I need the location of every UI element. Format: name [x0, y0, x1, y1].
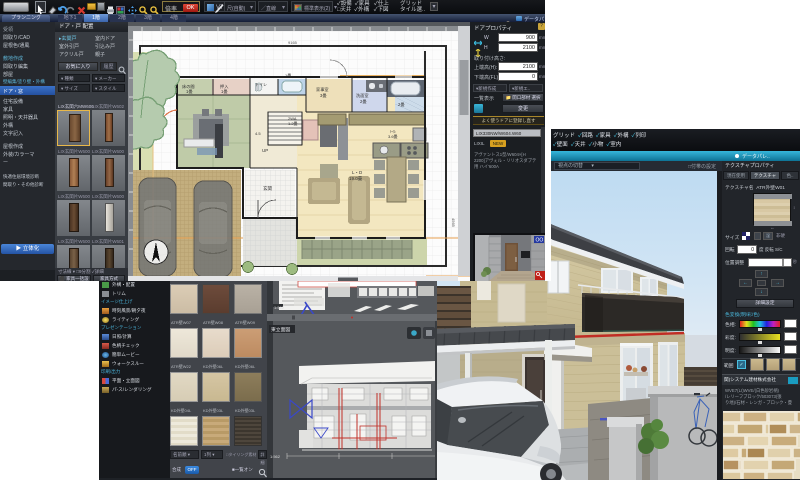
svg-text:トイレ: トイレ	[255, 82, 267, 87]
svg-text:東立面図: 東立面図	[271, 326, 290, 333]
svg-text:L・D: L・D	[352, 170, 363, 175]
svg-text:1:562: 1:562	[270, 454, 281, 459]
svg-text:玄関: 玄関	[263, 185, 272, 192]
svg-text:1畳: 1畳	[186, 89, 193, 94]
svg-text:UP: UP	[262, 148, 268, 153]
svg-text:4.5: 4.5	[255, 131, 261, 136]
svg-text:1.2畳: 1.2畳	[288, 120, 298, 126]
svg-text:2畳: 2畳	[360, 99, 367, 104]
svg-text:3.6畳: 3.6畳	[388, 133, 398, 139]
svg-text:OO: OO	[536, 238, 544, 244]
svg-text:4565: 4565	[451, 218, 456, 228]
svg-text:1畳: 1畳	[221, 89, 228, 94]
svg-text:9165: 9165	[288, 40, 298, 45]
svg-text:1:562: 1:562	[274, 305, 285, 310]
svg-text:3畳: 3畳	[320, 93, 327, 98]
svg-text:洗面室: 洗面室	[356, 92, 369, 99]
svg-text:19.0畳: 19.0畳	[349, 176, 363, 181]
svg-text:家事室: 家事室	[316, 86, 329, 93]
svg-text:2畳: 2畳	[398, 102, 405, 107]
